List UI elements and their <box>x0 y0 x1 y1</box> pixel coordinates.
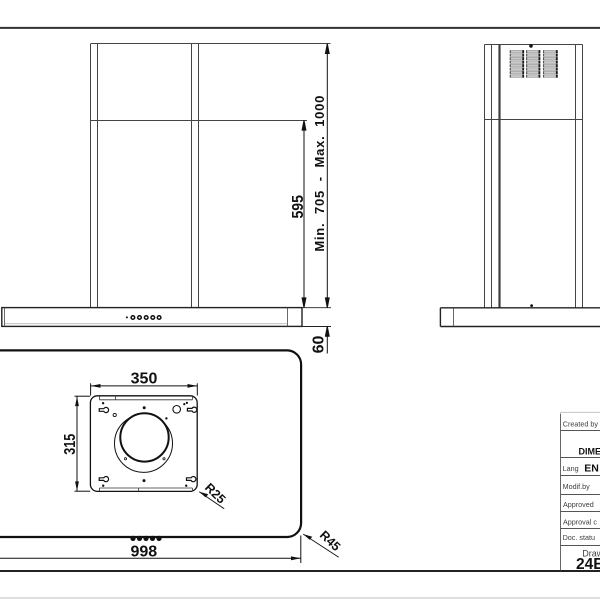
svg-text:350: 350 <box>131 371 158 388</box>
svg-text:315: 315 <box>62 434 79 455</box>
svg-text:Doc. statu: Doc. statu <box>563 533 595 542</box>
svg-text:Approval c: Approval c <box>563 517 597 526</box>
svg-text:EN: EN <box>584 463 599 475</box>
svg-text:Approved: Approved <box>563 500 594 509</box>
svg-text:595: 595 <box>290 195 307 219</box>
svg-text:DIMEN: DIMEN <box>579 447 600 457</box>
svg-text:R45: R45 <box>317 528 343 554</box>
svg-text:Lang: Lang <box>563 464 579 473</box>
svg-text:Min. 705 - Max. 1000: Min. 705 - Max. 1000 <box>312 95 327 252</box>
svg-text:998: 998 <box>130 544 157 561</box>
svg-text:60: 60 <box>311 336 328 354</box>
svg-text:Modif.by: Modif.by <box>563 482 591 491</box>
svg-text:24E: 24E <box>576 556 600 573</box>
svg-text:Created by: Created by <box>563 419 599 428</box>
svg-text:R25: R25 <box>202 481 228 507</box>
